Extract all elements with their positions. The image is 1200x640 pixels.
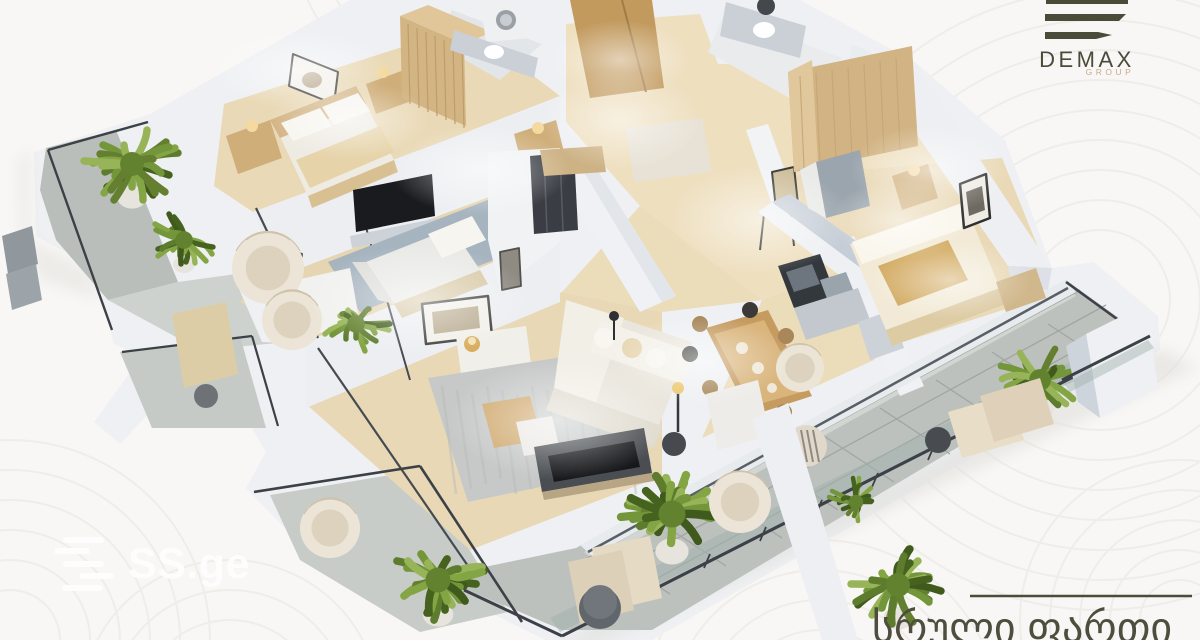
svg-text:სრული ფართი: სრული ფართი — [872, 604, 1172, 640]
svg-text:GROUP: GROUP — [1086, 67, 1135, 77]
svg-text:SS.ge: SS.ge — [128, 540, 250, 588]
